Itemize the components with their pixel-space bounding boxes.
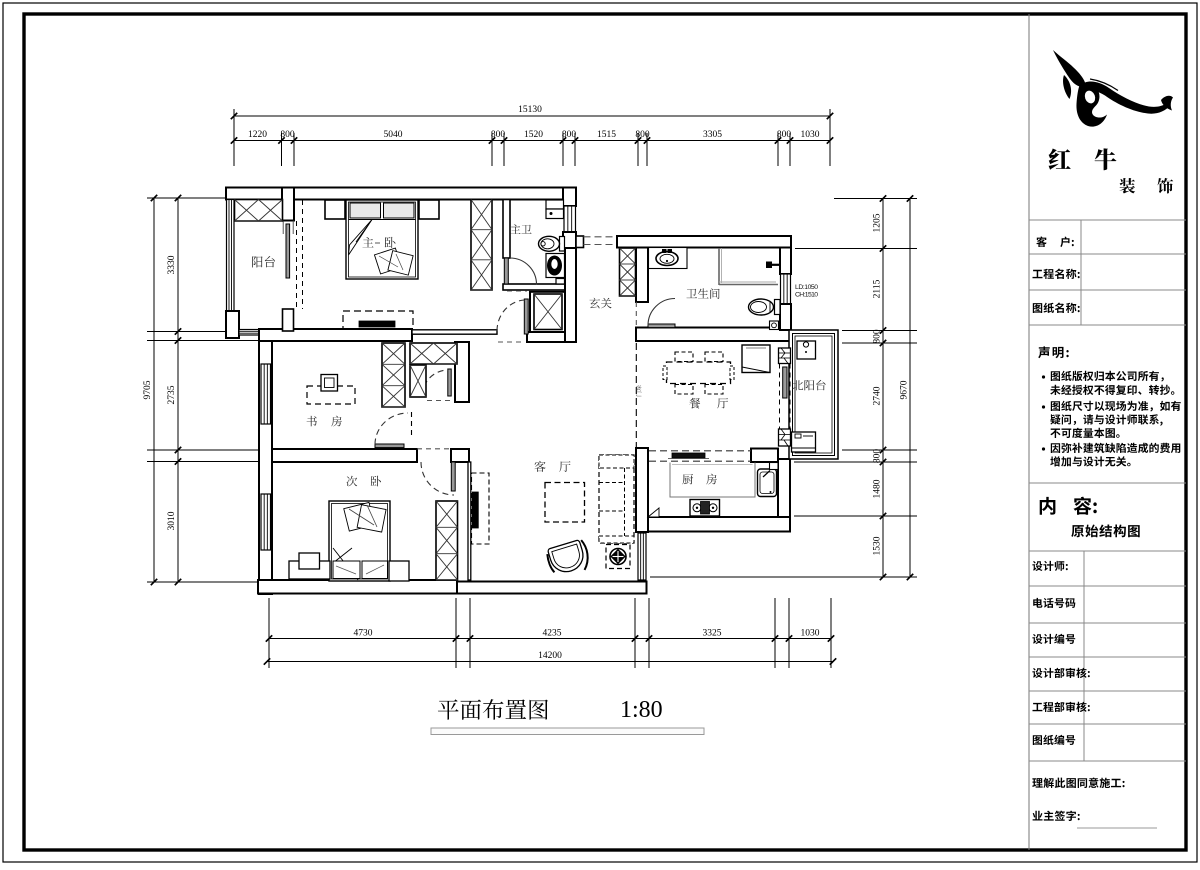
svg-text:800: 800 (280, 130, 295, 140)
svg-text:3305: 3305 (703, 130, 722, 140)
svg-text:800: 800 (777, 130, 792, 140)
svg-text:1520: 1520 (524, 130, 543, 140)
svg-text:2735: 2735 (167, 385, 177, 404)
svg-text:1530: 1530 (873, 536, 883, 555)
svg-text:14200: 14200 (538, 651, 562, 661)
svg-text:15130: 15130 (518, 105, 542, 115)
svg-text:1220: 1220 (248, 130, 267, 140)
svg-text:1515: 1515 (597, 130, 616, 140)
svg-text:5040: 5040 (384, 130, 403, 140)
svg-text:800: 800 (635, 130, 650, 140)
svg-text:LD:1050: LD:1050 (795, 284, 818, 291)
svg-text:3010: 3010 (167, 511, 177, 530)
svg-text:4235: 4235 (543, 629, 562, 639)
svg-text:9705: 9705 (143, 380, 153, 399)
svg-text:1205: 1205 (873, 213, 883, 232)
svg-text:1480: 1480 (873, 479, 883, 498)
svg-text:1030: 1030 (801, 130, 820, 140)
svg-text:1030: 1030 (801, 629, 820, 639)
svg-text:4730: 4730 (354, 629, 373, 639)
svg-text:800: 800 (873, 329, 883, 344)
svg-text:800: 800 (873, 449, 883, 464)
svg-text:CH:1510: CH:1510 (795, 292, 818, 299)
svg-text:3325: 3325 (703, 629, 722, 639)
svg-text:2115: 2115 (873, 279, 883, 298)
svg-text:1:80: 1:80 (620, 697, 663, 723)
svg-text:9670: 9670 (900, 380, 910, 399)
svg-text:800: 800 (562, 130, 577, 140)
svg-text:3330: 3330 (167, 255, 177, 274)
svg-text:800: 800 (491, 130, 506, 140)
svg-text:2740: 2740 (873, 386, 883, 405)
